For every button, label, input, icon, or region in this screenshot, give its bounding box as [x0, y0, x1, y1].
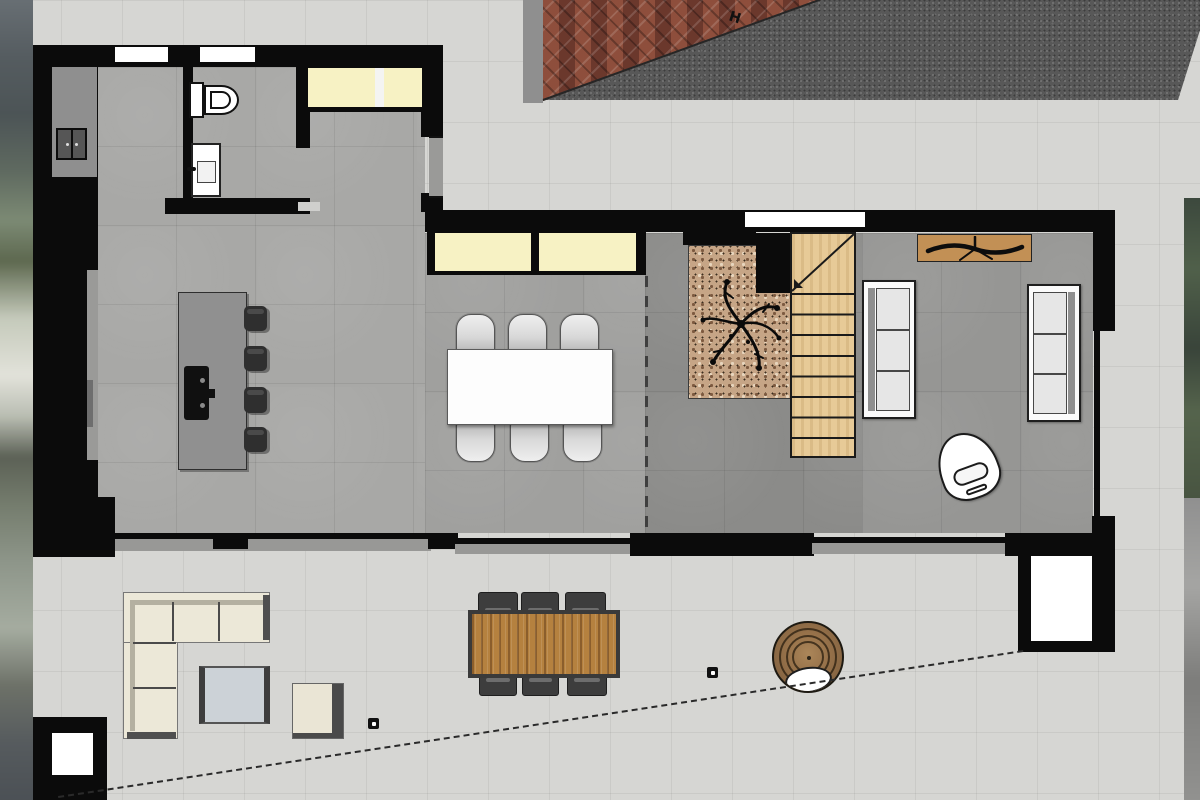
- sofa-left-back: [868, 288, 875, 411]
- pantry-window-mullion: [375, 68, 384, 107]
- drain-marker-1: [368, 718, 379, 729]
- corner-sofa-backline-top: [130, 600, 263, 605]
- wall-left-corner: [98, 497, 115, 557]
- drain-center: [711, 671, 715, 675]
- photo-edge-left-image: [0, 0, 33, 800]
- corner-sofa-seam: [133, 642, 176, 644]
- hedge-edge-right: [1184, 198, 1200, 498]
- corner-sofa-backline-left: [130, 600, 135, 731]
- floor-kitchen: [97, 67, 425, 533]
- wall-south-mullion-2: [428, 533, 458, 549]
- toilet-bowl-inner: [210, 91, 231, 109]
- floor-plan: H: [0, 0, 1200, 800]
- dining-table: [447, 349, 613, 425]
- window-north-2: [200, 47, 255, 62]
- washbasin-inner: [197, 161, 216, 183]
- sofa-left-cushions: [876, 288, 910, 411]
- corner-sofa-endcap-right: [263, 595, 270, 640]
- bar-stool-3: [244, 387, 267, 413]
- planter-box-sw-inner: [52, 733, 93, 775]
- dining-chair-6: [563, 420, 602, 462]
- sofa-left: [862, 280, 916, 419]
- sliding-door-glass-3: [812, 537, 1007, 543]
- washbasin-tap-icon: [187, 167, 196, 171]
- drain-marker-2: [707, 667, 718, 678]
- pantry-window-pane-1: [308, 68, 375, 107]
- door-sill-3: [812, 543, 1007, 554]
- appliance-icon: [56, 128, 87, 160]
- wall-bathroom-bottom: [165, 198, 310, 214]
- corner-sofa-seam: [218, 602, 220, 641]
- burner-dot-2: [200, 403, 205, 408]
- outdoor-chair-6: [567, 675, 607, 696]
- kitchen-counter-strip: [87, 270, 98, 460]
- appliance-divider: [71, 130, 73, 158]
- wall-notch: [298, 202, 320, 211]
- appliance-knob-right: [75, 143, 78, 146]
- drain-center: [372, 722, 376, 726]
- cooktop-handle: [208, 389, 215, 398]
- dining-chair-4: [456, 420, 495, 462]
- dining-window-pane-1: [435, 233, 531, 271]
- utility-counter: [52, 67, 97, 177]
- wall-planter-top: [683, 230, 756, 245]
- sofa-right-back: [1068, 292, 1075, 414]
- cooktop: [184, 366, 209, 420]
- photo-edge-left: [0, 0, 33, 800]
- outdoor-chair-5: [522, 675, 559, 696]
- fire-pit-center-dot: [807, 656, 811, 660]
- cushion-seam: [877, 329, 909, 331]
- side-table-edge-bottom: [293, 733, 332, 738]
- side-table-edge-right: [332, 684, 343, 738]
- corner-sofa-seam: [172, 602, 174, 641]
- wall-south-1: [630, 533, 814, 556]
- toilet-tank: [189, 82, 204, 118]
- planter-box-se-left: [1018, 556, 1031, 651]
- tv-decor-icon: [920, 236, 1030, 262]
- kitchen-counter-nub: [87, 380, 93, 427]
- stair-treads: [790, 293, 856, 458]
- side-table: [292, 683, 344, 739]
- corner-sofa-seam: [133, 687, 176, 689]
- zone-divider-dashed: [645, 276, 648, 533]
- entry-door-leaf: [429, 136, 443, 198]
- hedge-image: [1184, 198, 1200, 498]
- bar-stool-4: [244, 427, 267, 452]
- wall-east-upper: [1093, 210, 1115, 331]
- outdoor-chair-4: [479, 675, 517, 696]
- door-sill-1: [115, 539, 431, 551]
- coffee-table: [199, 666, 270, 724]
- planter-box-se-right: [1092, 556, 1115, 651]
- wall-planter-side: [756, 233, 790, 293]
- sofa-right-cushions: [1033, 292, 1067, 414]
- sofa-right: [1027, 284, 1081, 422]
- corner-sofa-endcap-bottom: [127, 732, 176, 739]
- cushion-seam: [1034, 333, 1066, 335]
- sliding-door-glass-2: [455, 538, 632, 544]
- planter-box-se-inner: [1031, 556, 1092, 641]
- appliance-knob-left: [66, 143, 69, 146]
- entry-opening-north: [745, 212, 865, 227]
- photo-edge-right-bottom: [1184, 498, 1200, 800]
- pantry-window-pane-2: [384, 68, 422, 107]
- window-east-glass: [1094, 331, 1100, 517]
- dining-window-pane-2: [539, 233, 636, 271]
- cushion-seam: [877, 370, 909, 372]
- window-north-1: [115, 47, 168, 62]
- concrete-band: [523, 0, 543, 103]
- bar-stool-2: [244, 346, 267, 371]
- photo-edge-right-image: [1184, 498, 1200, 800]
- cushion-seam: [1034, 373, 1066, 375]
- outdoor-dining-table: [468, 610, 620, 678]
- dining-chair-5: [510, 420, 549, 462]
- armchair-footline: [965, 483, 988, 496]
- bar-stool-1: [244, 306, 267, 331]
- wall-south-2: [1005, 533, 1115, 556]
- wall-south-mullion-1: [213, 533, 248, 549]
- burner-dot-1: [200, 378, 205, 383]
- door-sill-2: [455, 544, 632, 554]
- sliding-door-glass-1: [115, 533, 431, 539]
